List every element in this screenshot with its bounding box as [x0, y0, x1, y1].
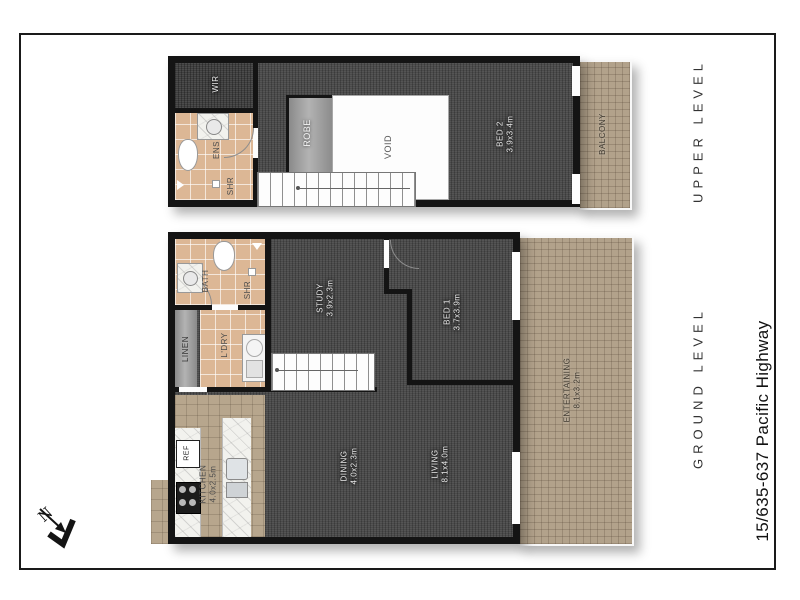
ens-toilet-icon [178, 139, 198, 171]
stove-icon [176, 482, 201, 514]
kitchen-sink-icon [226, 458, 248, 480]
room-label-void: VOID [383, 135, 395, 159]
burner-icon [179, 499, 186, 506]
burner-icon [189, 499, 196, 506]
room-label-living: LIVING 8.1x4.0m [431, 446, 452, 483]
wall-bed1-bottom [407, 380, 515, 385]
upper-stairs [257, 172, 416, 207]
shower-drain-icon [212, 180, 220, 188]
entertaining-door-opening-2 [512, 452, 520, 524]
laundry-tub-icon [242, 334, 266, 382]
entertaining-door-opening-1 [512, 252, 520, 320]
laundry-sink-bowl [246, 339, 263, 357]
burner-icon [179, 486, 186, 493]
room-label-dining: DINING 4.0x2.3m [340, 448, 361, 485]
bed1-door-opening [384, 240, 389, 268]
room-label-linen: LINEN [181, 336, 191, 362]
room-label-entertaining: ENTERTAINING 8.1x3.2m [563, 358, 584, 423]
address-label: 15/635-637 Pacific Highway [753, 320, 773, 541]
room-label-bed1: BED 1 3.7x3.9m [443, 294, 464, 331]
wall-bed1-inner [407, 289, 412, 385]
ground-level-label: GROUND LEVEL [691, 307, 706, 469]
room-label-balcony: BALCONY [598, 113, 608, 155]
ground-shower-head-icon [252, 243, 262, 250]
entry-porch [151, 480, 168, 544]
kitchen-door-opening [179, 387, 207, 392]
floor-plan-canvas: WIR ENS SHR ROBE VOID BED 2 3.9x3.4m BAL… [0, 0, 800, 600]
room-label-ref: REF [182, 445, 191, 461]
bath-toilet-icon [213, 241, 235, 271]
room-label-wir: WIR [211, 75, 221, 92]
north-compass-icon: N [33, 496, 91, 550]
balcony-door-opening-2 [572, 174, 580, 204]
upper-stair-start-dot [296, 186, 300, 190]
room-label-bed2: BED 2 3.9x3.4m [496, 116, 517, 153]
room-label-ens: ENS [212, 141, 222, 159]
room-label-study: STUDY 3.9x2.3m [316, 280, 337, 317]
ens-vanity [197, 113, 229, 140]
room-label-robe: ROBE [302, 119, 314, 147]
laundry-machine [246, 360, 263, 378]
ens-door-opening [253, 128, 258, 158]
room-label-bath: BATH [201, 270, 211, 293]
balcony-door-opening-1 [572, 66, 580, 96]
burner-icon [189, 486, 196, 493]
dishwasher-icon [226, 482, 248, 498]
bath-sink-icon [183, 271, 198, 286]
ground-shower-drain-icon [248, 268, 256, 276]
ground-stairs [271, 353, 375, 391]
compass-n-letter: N [35, 504, 57, 526]
room-label-ldry: L'DRY [220, 332, 230, 357]
room-label-kitchen: KITCHEN 4.0x2.5m [199, 465, 220, 504]
ground-stair-direction-line [278, 370, 358, 371]
room-label-shr-ground: SHR [243, 281, 253, 299]
ground-stair-start-dot [275, 368, 279, 372]
room-label-shr-upper: SHR [226, 177, 236, 195]
bath-vanity [177, 263, 203, 293]
upper-stair-direction-line [300, 188, 410, 189]
upper-level-label: UPPER LEVEL [691, 59, 706, 203]
shower-head-icon [177, 180, 184, 190]
ens-sink-icon [206, 119, 222, 135]
